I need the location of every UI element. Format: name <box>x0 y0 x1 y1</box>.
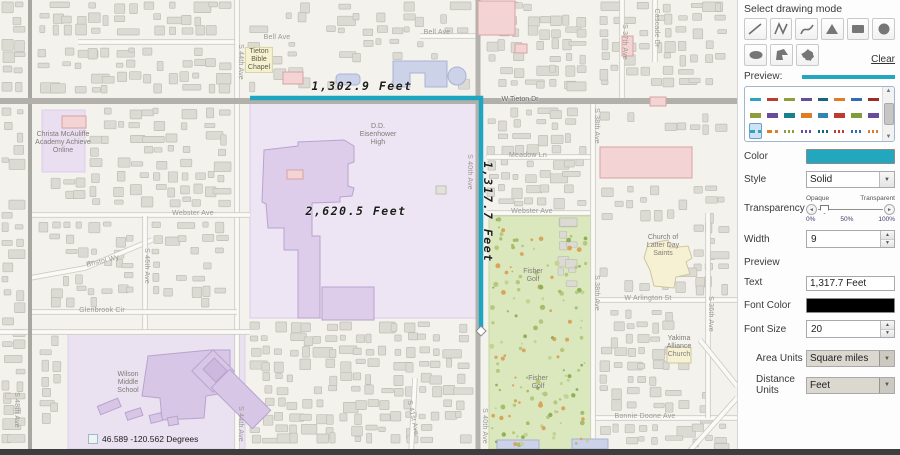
style-select[interactable]: Solid ▼ <box>806 171 895 188</box>
distance-units-value: Feet <box>807 380 879 391</box>
opaque-label: Opaque <box>806 195 829 202</box>
palette-rows <box>749 91 880 139</box>
style-value: Solid <box>807 174 879 185</box>
spin-down-icon[interactable]: ▼ <box>881 240 894 248</box>
line-style-swatch[interactable] <box>833 107 846 123</box>
line-style-swatch[interactable] <box>867 91 880 107</box>
font-color-label: Font Color <box>744 300 806 311</box>
scrollbar-thumb[interactable] <box>884 103 894 125</box>
line-style-swatch[interactable] <box>833 91 846 107</box>
golf-course <box>489 216 591 449</box>
line-style-swatch[interactable] <box>867 123 880 139</box>
chevron-down-icon[interactable]: ▼ <box>879 172 894 187</box>
color-label: Color <box>744 151 806 162</box>
width-stepper[interactable]: 9 ▲▼ <box>806 230 895 248</box>
clear-link[interactable]: Clear <box>871 54 895 66</box>
line-preview-swatch <box>802 75 895 79</box>
text-label: Text <box>744 277 806 288</box>
line-style-swatch[interactable] <box>783 107 796 123</box>
line-style-swatch[interactable] <box>850 123 863 139</box>
text-input[interactable] <box>806 276 895 291</box>
font-size-value: 20 <box>807 321 880 337</box>
transparency-slider[interactable]: Opaque Transparent ◄ ► 0% 50% 100% <box>806 195 895 223</box>
bottom-bar <box>0 449 900 455</box>
style-label: Style <box>744 174 806 185</box>
text-preview-label: Preview <box>744 257 895 268</box>
font-size-label: Font Size <box>744 324 806 335</box>
transparency-label: Transparency <box>744 203 806 214</box>
map-canvas[interactable]: Bell AveBell AveW Tieton DrMeadow LnWebs… <box>0 0 737 455</box>
eisenhower-annex <box>322 287 374 320</box>
tool-rectangle-button[interactable] <box>847 18 870 40</box>
spin-down-icon[interactable]: ▼ <box>881 330 894 338</box>
tool-triangle-button[interactable] <box>821 18 844 40</box>
coordinate-text: 46.589 -120.562 Degrees <box>102 434 198 444</box>
line-style-swatch[interactable] <box>817 91 830 107</box>
tool-circle-button[interactable] <box>872 18 895 40</box>
small-building <box>436 186 446 194</box>
line-style-swatch[interactable] <box>766 107 779 123</box>
scroll-up-icon[interactable]: ▲ <box>886 88 892 94</box>
slider-right-arrow-icon[interactable]: ► <box>884 204 895 215</box>
panel-title: Select drawing mode <box>744 3 895 15</box>
spin-up-icon[interactable]: ▲ <box>881 231 894 240</box>
tool-ellipse-button[interactable] <box>744 44 767 66</box>
line-style-swatch[interactable] <box>850 107 863 123</box>
line-style-swatch[interactable] <box>800 91 813 107</box>
line-style-swatch[interactable] <box>783 91 796 107</box>
slider-thumb[interactable] <box>820 205 829 214</box>
font-size-stepper[interactable]: 20 ▲▼ <box>806 320 895 338</box>
tick-0: 0% <box>806 216 815 223</box>
slider-left-arrow-icon[interactable]: ◄ <box>806 204 817 215</box>
line-style-palette[interactable]: ▲ ▼ <box>744 86 895 142</box>
distance-units-select[interactable]: Feet ▼ <box>806 377 895 394</box>
tool-freehand-polygon-button[interactable] <box>796 44 819 66</box>
preview-label: Preview: <box>744 71 782 82</box>
line-style-swatch[interactable] <box>817 107 830 123</box>
tool-polygon-button[interactable] <box>770 44 793 66</box>
line-style-swatch[interactable] <box>766 91 779 107</box>
yakima-church-building <box>667 347 691 363</box>
line-style-swatch[interactable] <box>800 107 813 123</box>
area-units-select[interactable]: Square miles ▼ <box>806 350 895 367</box>
measure-drawing-app: Bell AveBell AveW Tieton DrMeadow LnWebs… <box>0 0 900 455</box>
font-color-swatch[interactable] <box>806 298 895 313</box>
transparent-label: Transparent <box>860 195 895 202</box>
chevron-down-icon[interactable]: ▼ <box>879 378 894 393</box>
coordinate-readout: 46.589 -120.562 Degrees <box>88 434 198 444</box>
width-value: 9 <box>807 231 880 247</box>
line-style-swatch[interactable] <box>867 107 880 123</box>
line-style-swatch[interactable] <box>817 123 830 139</box>
tool-row-2: Clear <box>744 44 895 66</box>
line-style-swatch[interactable] <box>749 123 762 139</box>
color-swatch[interactable] <box>806 149 895 164</box>
line-style-swatch[interactable] <box>749 91 762 107</box>
tool-row-1 <box>744 18 895 40</box>
basemap <box>0 0 737 455</box>
line-preview-row: Preview: <box>744 71 895 82</box>
line-style-swatch[interactable] <box>783 123 796 139</box>
line-style-swatch[interactable] <box>850 91 863 107</box>
line-style-swatch[interactable] <box>833 123 846 139</box>
line-style-swatch[interactable] <box>766 123 779 139</box>
area-units-value: Square miles <box>807 353 879 364</box>
width-label: Width <box>744 234 806 245</box>
tool-polyline-button[interactable] <box>770 18 793 40</box>
tick-50: 50% <box>840 216 853 223</box>
area-units-label: Area Units <box>744 353 806 364</box>
line-style-swatch[interactable] <box>749 107 762 123</box>
scroll-down-icon[interactable]: ▼ <box>886 134 892 140</box>
tool-line-button[interactable] <box>744 18 767 40</box>
chevron-down-icon[interactable]: ▼ <box>879 351 894 366</box>
slider-track[interactable] <box>818 205 883 214</box>
spin-up-icon[interactable]: ▲ <box>881 321 894 330</box>
tool-freehand-line-button[interactable] <box>795 18 818 40</box>
distance-units-label: Distance Units <box>744 374 806 396</box>
line-style-swatch[interactable] <box>800 123 813 139</box>
drawing-settings-panel: Select drawing mode Clear <box>737 0 900 449</box>
tick-100: 100% <box>878 216 895 223</box>
palette-scrollbar[interactable]: ▲ ▼ <box>882 87 894 141</box>
coordinate-icon <box>88 434 98 444</box>
